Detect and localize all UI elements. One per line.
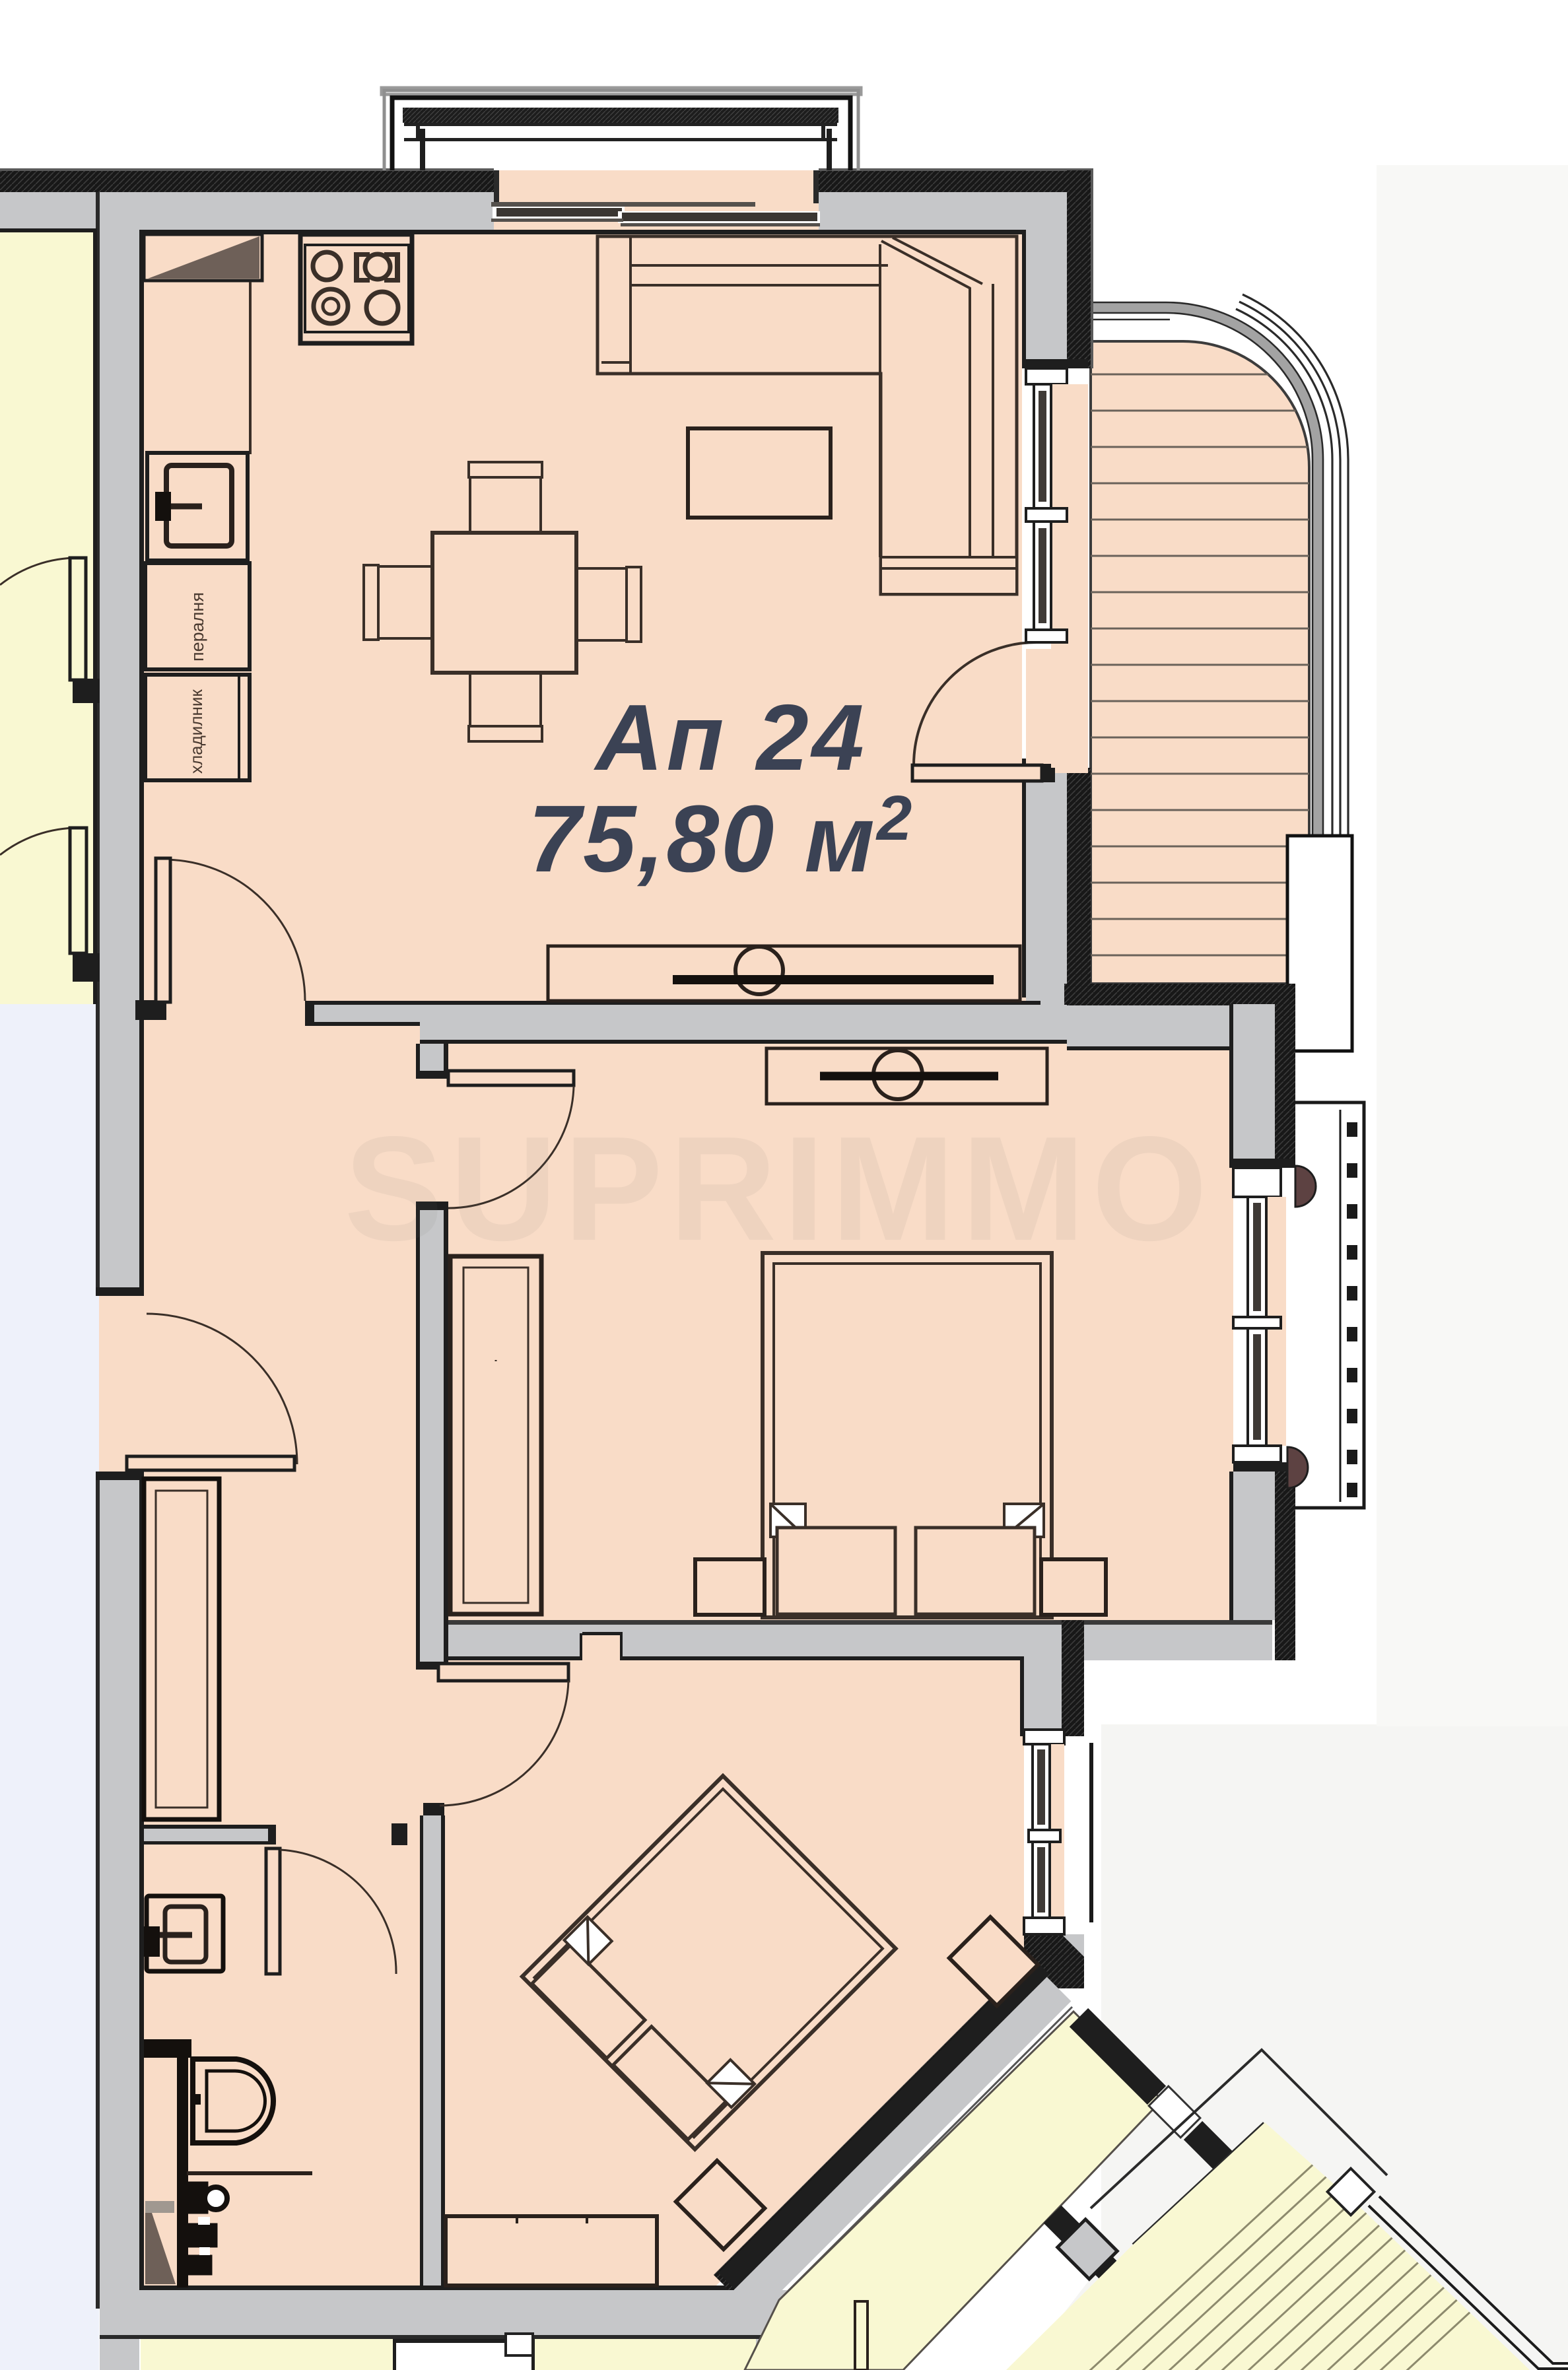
svg-text:75,80 м2: 75,80 м2 xyxy=(528,783,914,892)
svg-text:SUPRIMMO: SUPRIMMO xyxy=(344,1105,1214,1271)
svg-text:Ап 24: Ап 24 xyxy=(594,685,868,790)
svg-text:хладилник: хладилник xyxy=(186,689,206,774)
svg-text:пералня: пералня xyxy=(187,592,207,661)
